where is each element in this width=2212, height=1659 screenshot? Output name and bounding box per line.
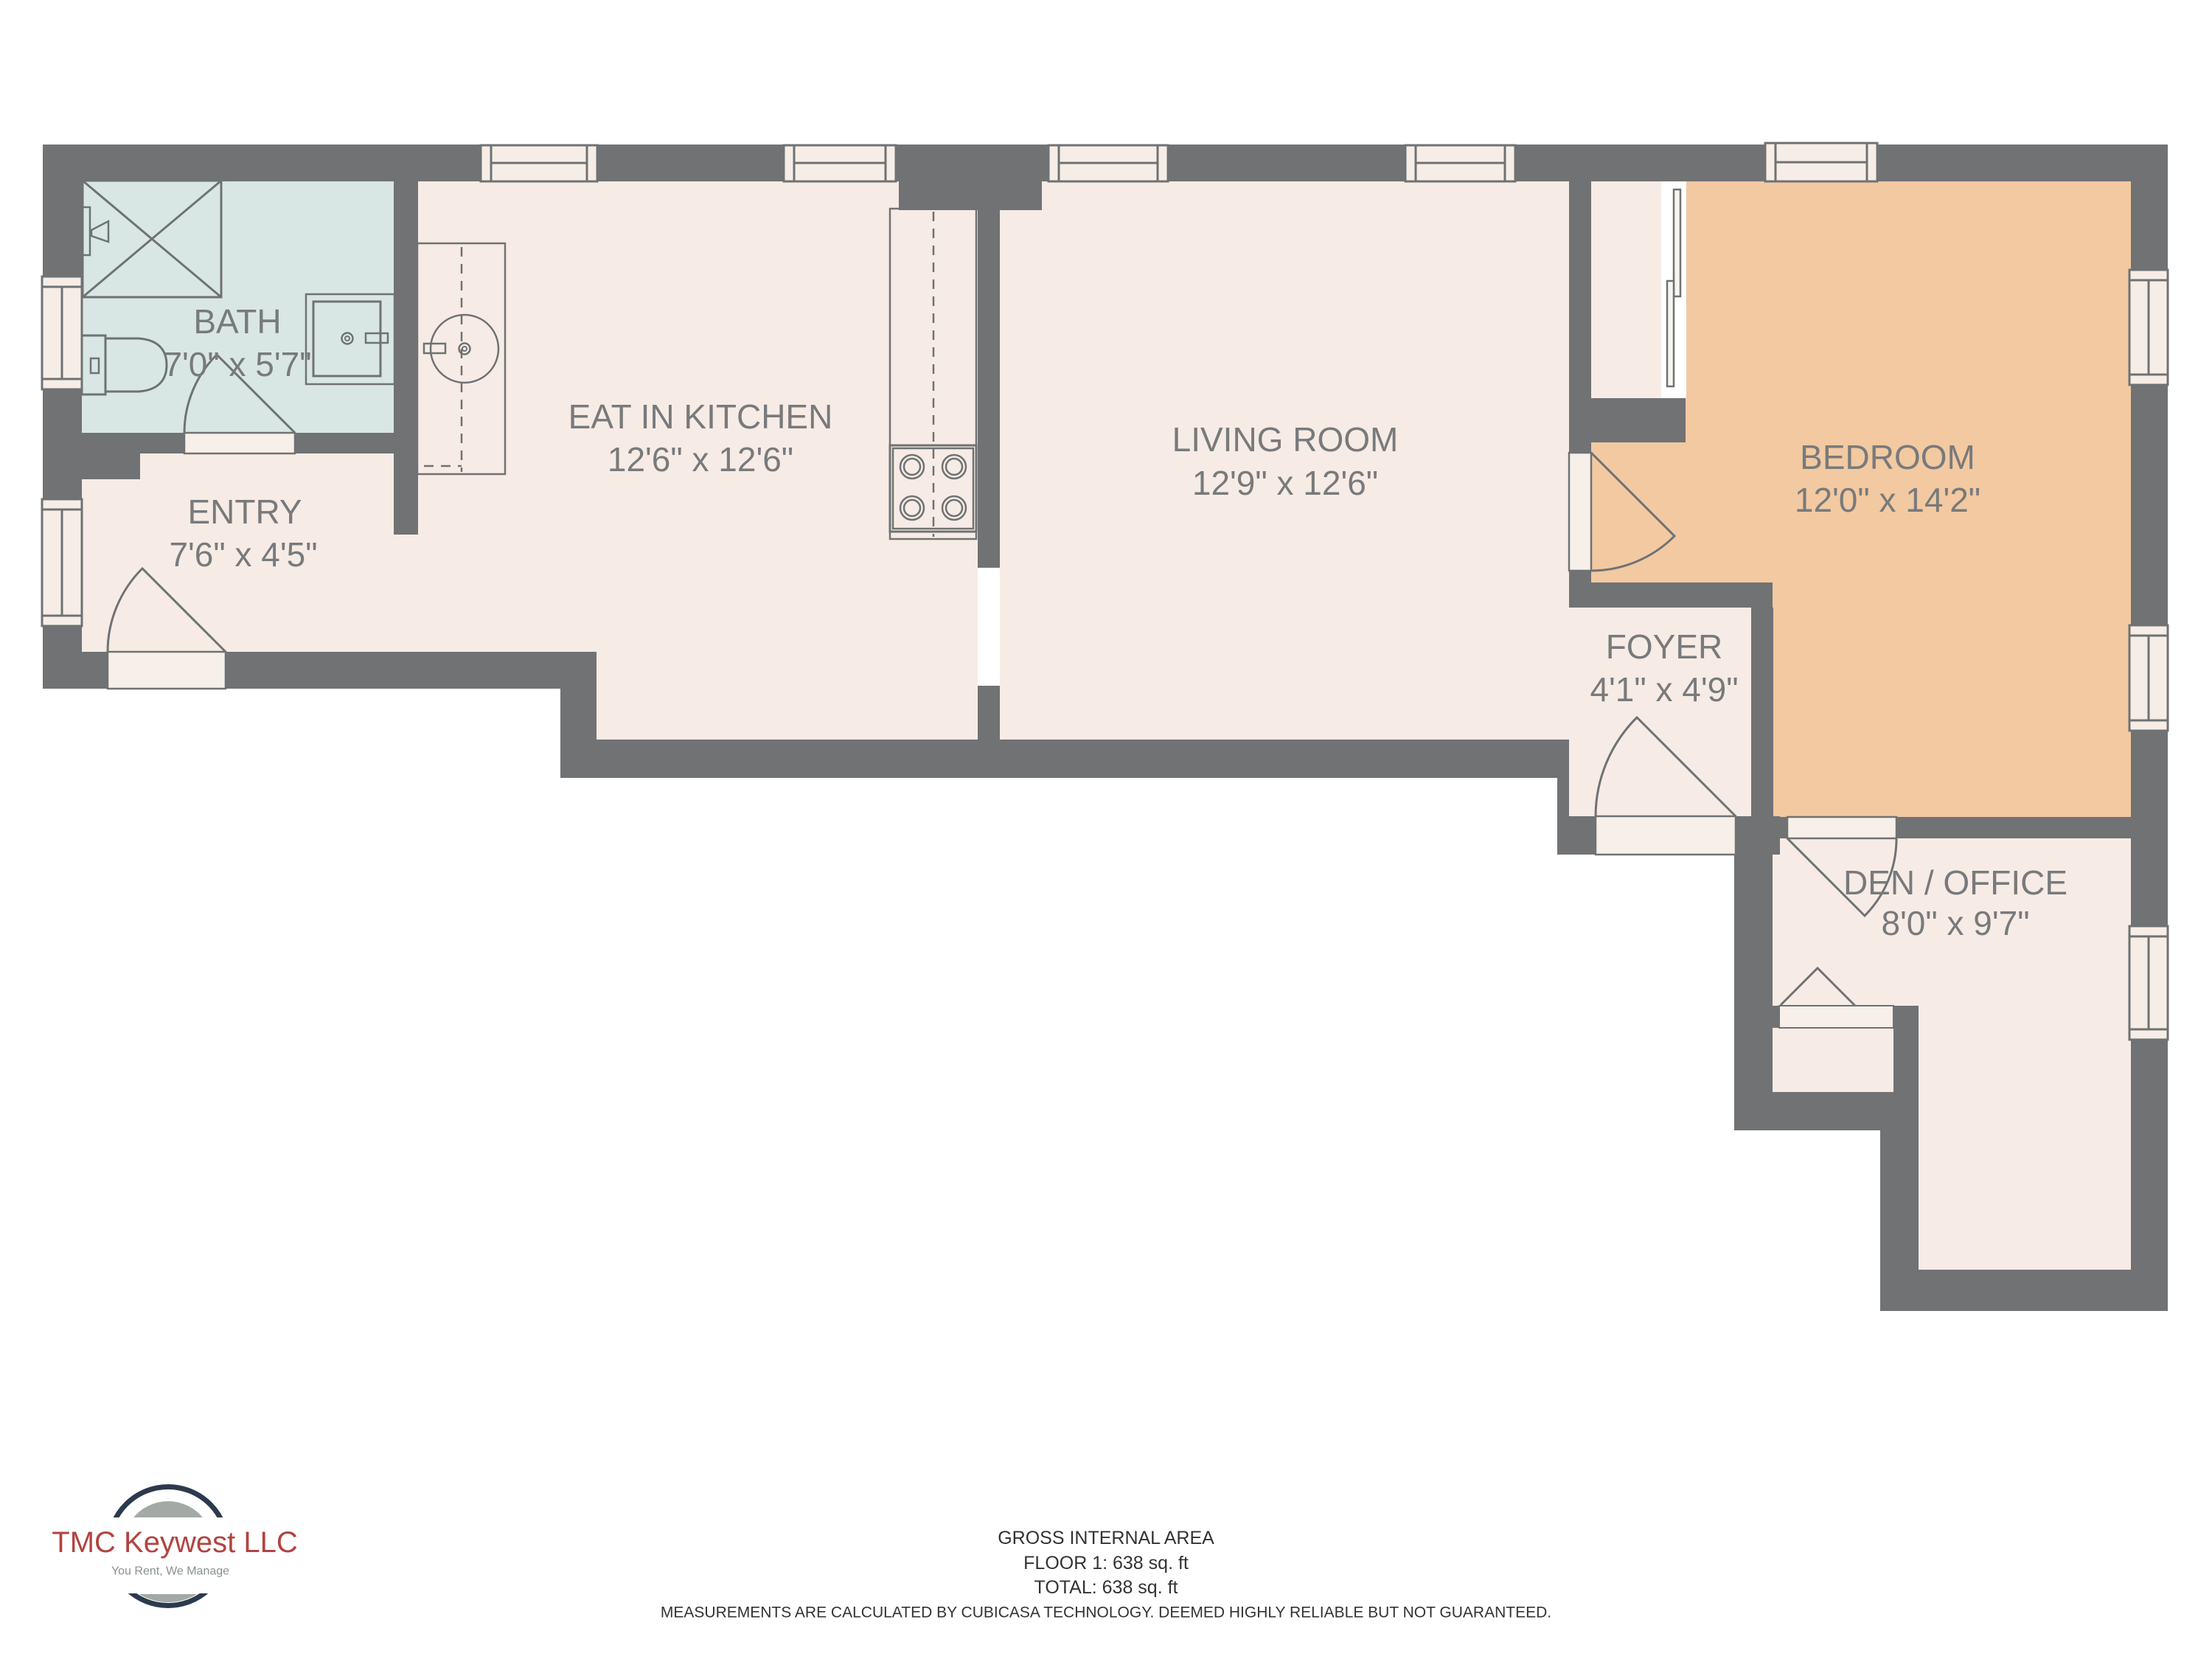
svg-text:FOYER: FOYER (1606, 627, 1722, 666)
svg-text:7'6" x 4'5": 7'6" x 4'5" (169, 535, 317, 574)
svg-text:DEN / OFFICE: DEN / OFFICE (1843, 863, 2067, 902)
svg-text:ENTRY: ENTRY (187, 493, 302, 531)
svg-text:TMC Keywest LLC: TMC Keywest LLC (52, 1526, 297, 1559)
svg-text:You Rent, We Manage: You Rent, We Manage (111, 1565, 229, 1578)
svg-text:BEDROOM: BEDROOM (1800, 438, 1975, 476)
svg-text:8'0" x 9'7": 8'0" x 9'7" (1881, 904, 2029, 942)
svg-text:MEASUREMENTS ARE CALCULATED BY: MEASUREMENTS ARE CALCULATED BY CUBICASA … (661, 1604, 1551, 1621)
svg-text:12'0" x 14'2": 12'0" x 14'2" (1795, 481, 1980, 519)
svg-text:12'6" x 12'6": 12'6" x 12'6" (608, 440, 793, 479)
svg-text:FLOOR 1: 638 sq. ft: FLOOR 1: 638 sq. ft (1023, 1553, 1189, 1573)
svg-text:7'0" x 5'7": 7'0" x 5'7" (163, 345, 311, 383)
svg-text:EAT IN KITCHEN: EAT IN KITCHEN (568, 397, 833, 436)
svg-text:TOTAL: 638 sq. ft: TOTAL: 638 sq. ft (1034, 1577, 1178, 1598)
svg-text:LIVING ROOM: LIVING ROOM (1172, 420, 1399, 459)
svg-text:GROSS INTERNAL AREA: GROSS INTERNAL AREA (998, 1528, 1214, 1548)
svg-text:12'9" x 12'6": 12'9" x 12'6" (1192, 464, 1378, 502)
svg-text:BATH: BATH (193, 302, 281, 341)
svg-text:4'1" x 4'9": 4'1" x 4'9" (1590, 670, 1738, 709)
